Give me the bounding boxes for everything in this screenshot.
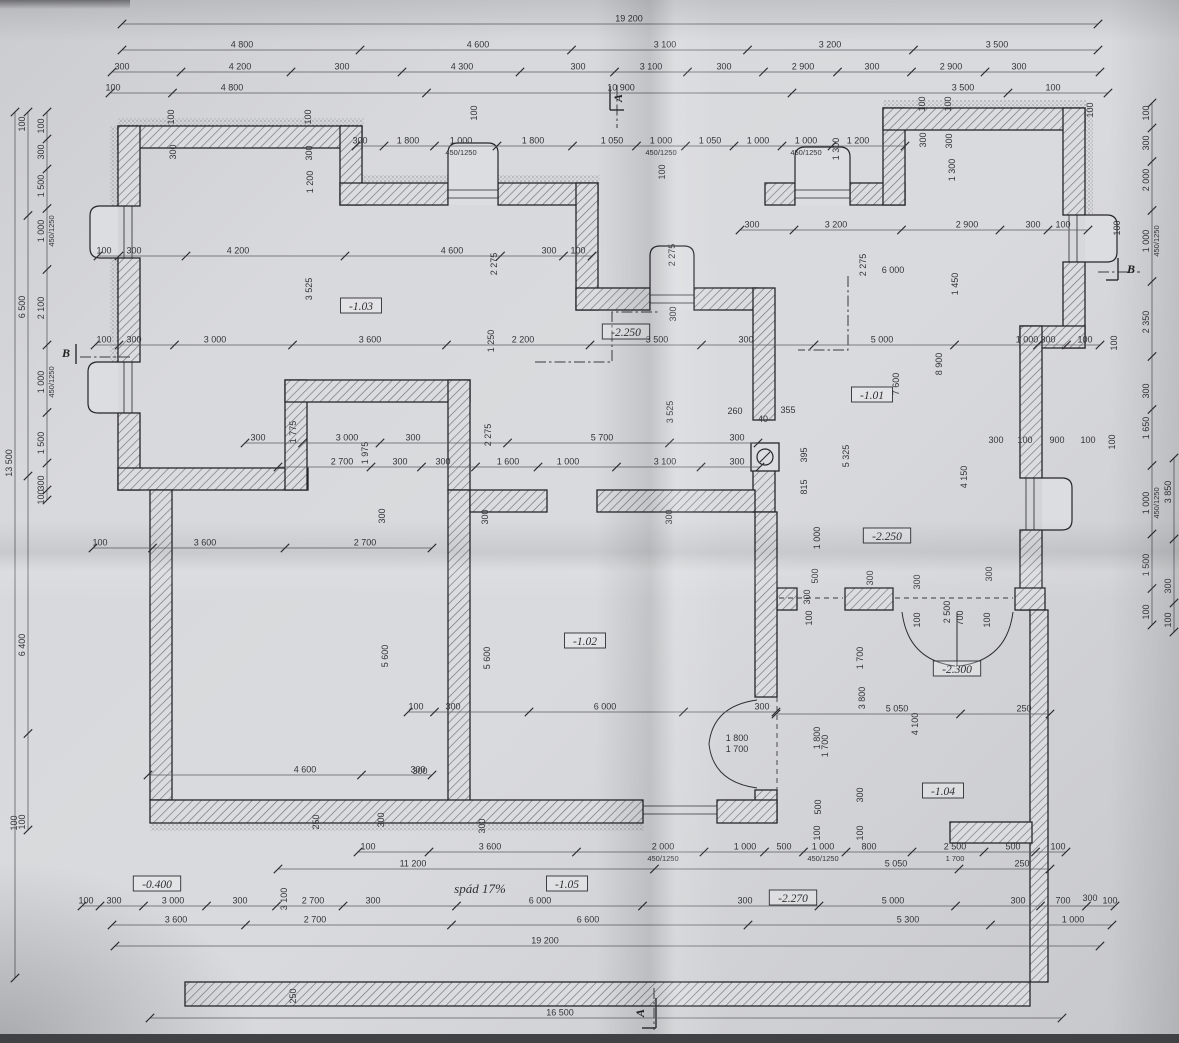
dim-label: 100	[1077, 335, 1092, 345]
dim-label: 3 800	[857, 687, 867, 710]
slope-annotation: spád 17%	[454, 881, 506, 896]
dim-label: 395	[799, 447, 809, 462]
dim-label: 2 700	[331, 457, 354, 467]
dim-label: 1 800	[726, 733, 749, 743]
dim-label: 100	[92, 538, 107, 548]
dim-label: 3 200	[819, 40, 842, 50]
dim-label: 2 000	[652, 842, 675, 852]
dim-label: 1 050	[601, 136, 624, 146]
room-level-label: -2.270	[778, 893, 808, 905]
dim-label: 300	[984, 566, 994, 581]
dim-label: 1 000	[1016, 335, 1039, 345]
dim-label: 2 275	[667, 244, 677, 267]
dim-label: 4 600	[441, 246, 464, 256]
dim-label: 300	[377, 508, 387, 523]
dim-label: 300	[865, 570, 875, 585]
dim-label: 300	[1025, 220, 1040, 230]
dim-label: 3 000	[336, 433, 359, 443]
room-level-label: -2.250	[611, 327, 641, 339]
room-level-label: -2.250	[872, 531, 902, 543]
dim-label: 700	[1055, 896, 1070, 906]
dim-label: 5 050	[886, 704, 909, 714]
dim-label: 3 600	[479, 842, 502, 852]
dim-label: 300	[1010, 896, 1025, 906]
dim-label: 450/1250	[47, 215, 56, 246]
dim-label: 300	[716, 62, 731, 72]
dim-label: 1 800	[522, 136, 545, 146]
dim-label: 1 250	[486, 330, 496, 353]
dim-label: 3 600	[165, 915, 188, 925]
dim-label: 100	[360, 842, 375, 852]
dim-label: 2 350	[1141, 311, 1151, 334]
dim-label: 300	[250, 433, 265, 443]
room-level-label: -1.05	[555, 879, 579, 891]
dim-label: 13 500	[4, 449, 14, 477]
dim-label: 250	[311, 814, 321, 829]
dim-label: 5 700	[591, 433, 614, 443]
dim-label: 300	[114, 62, 129, 72]
dim-label: 100	[1080, 435, 1095, 445]
dim-label: 4 300	[451, 62, 474, 72]
dim-label: 3 200	[825, 220, 848, 230]
dim-label: 300	[232, 896, 247, 906]
dim-label: 1 500	[36, 175, 46, 198]
dim-label: 100	[36, 118, 46, 133]
dim-label: 300	[541, 246, 556, 256]
dim-label: 100	[96, 335, 111, 345]
dim-label: 100	[855, 825, 865, 840]
dim-label: 11 200	[400, 859, 427, 869]
dim-label: 1 800	[397, 136, 420, 146]
dim-label: 6 000	[594, 702, 617, 712]
dim-label: 1 000	[812, 527, 822, 550]
dim-label: 300	[365, 896, 380, 906]
dim-label: 6 600	[577, 915, 600, 925]
dim-label: 300	[737, 896, 752, 906]
dim-label: 3 525	[665, 401, 675, 424]
dim-label: 5 000	[871, 335, 894, 345]
dim-label: 100	[1102, 896, 1117, 906]
dim-label: 300	[729, 457, 744, 467]
dim-label: 300	[570, 62, 585, 72]
dim-label: 6 400	[17, 634, 27, 657]
dim-label: 1 700	[946, 854, 965, 863]
dim-label: 3 600	[194, 538, 217, 548]
dim-label: 2 700	[304, 915, 327, 925]
dim-label: 1 000	[450, 136, 473, 146]
dim-label: 100	[166, 109, 176, 124]
dim-label: 2 900	[792, 62, 815, 72]
dim-label: 2 200	[512, 335, 535, 345]
dim-label: 1 700	[726, 744, 749, 754]
room-level-label: -2.300	[942, 664, 972, 676]
dim-label: 300	[477, 818, 487, 833]
room-level-label: -1.04	[931, 786, 955, 798]
dim-label: 700	[955, 610, 965, 625]
dim-label: 300	[405, 433, 420, 443]
dim-label: 100	[657, 164, 667, 179]
dim-label: 300	[668, 306, 678, 321]
dim-label: 100	[1055, 220, 1070, 230]
dim-label: 19 200	[531, 936, 559, 946]
dim-label: 100	[78, 896, 93, 906]
dim-label: 1 700	[855, 647, 865, 670]
dim-label: 300	[168, 144, 178, 159]
dim-label: 800	[861, 842, 876, 852]
dim-label: 100	[943, 96, 953, 111]
walls	[118, 108, 1085, 1006]
dim-label: 300	[918, 132, 928, 147]
section-marker-letter: A	[611, 94, 625, 103]
dim-label: 2 100	[36, 297, 46, 320]
dim-label: 4 600	[467, 40, 490, 50]
dim-label: 100	[1163, 612, 1173, 627]
dim-label: 6 000	[529, 896, 552, 906]
dim-label: 300	[988, 435, 1003, 445]
dim-label: 1 000	[1141, 492, 1151, 515]
dim-label: 3 000	[204, 335, 227, 345]
dim-label: 3 100	[279, 888, 289, 911]
dim-label: 1 650	[1141, 417, 1151, 440]
dim-label: 500	[810, 568, 820, 583]
dim-label: 3 600	[359, 335, 382, 345]
dim-label: 250	[288, 988, 298, 1003]
dim-label: 300	[744, 220, 759, 230]
dim-label: 4 600	[294, 765, 317, 775]
dim-label: 450/1250	[1152, 487, 1161, 518]
dim-label: 3 500	[952, 83, 975, 93]
scanned-floor-plan-sheet: spád 17% 19 2004 8004 6003 1003 2003 500…	[0, 0, 1179, 1043]
dim-label: 1 200	[305, 171, 315, 194]
dim-label: 1 775	[288, 421, 298, 444]
dim-label: 1 000	[557, 457, 580, 467]
dim-label: 100	[105, 83, 120, 93]
dim-label: 300	[1141, 135, 1151, 150]
dim-label: 2 275	[489, 253, 499, 276]
dim-label: 100	[804, 610, 814, 625]
dim-label: 300	[36, 475, 46, 490]
dim-label: 300	[1011, 62, 1026, 72]
dim-label: 100	[570, 246, 585, 256]
dim-label: 300	[802, 589, 812, 604]
section-marker-letter: B	[61, 346, 70, 360]
dim-label: 450/1250	[790, 148, 821, 157]
dim-label: 2 900	[956, 220, 979, 230]
dim-label: 5 300	[897, 915, 920, 925]
dim-label: 300	[912, 574, 922, 589]
section-marker-letter: B	[1126, 262, 1135, 276]
dim-label: 450/1250	[1152, 225, 1161, 256]
floor-plan-drawing: spád 17% 19 2004 8004 6003 1003 2003 500…	[0, 0, 1179, 1043]
dim-label: 5 000	[882, 896, 905, 906]
dim-label: 250	[1014, 859, 1029, 869]
dim-label: 450/1250	[647, 854, 678, 863]
dim-label: 300	[944, 133, 954, 148]
dim-label: 2 700	[302, 896, 325, 906]
dim-label: 450/1250	[445, 148, 476, 157]
dim-label: 100	[1109, 335, 1119, 350]
dim-label: 500	[813, 799, 823, 814]
dim-label: 5 600	[380, 645, 390, 668]
dim-label: 100	[1141, 604, 1151, 619]
dim-label: 2 500	[944, 842, 967, 852]
dim-label: 1 000	[650, 136, 673, 146]
dim-label: 1 000	[812, 842, 835, 852]
dim-label: 5 325	[841, 445, 851, 468]
dim-label: 100	[303, 109, 313, 124]
dim-label: 300	[480, 509, 490, 524]
dim-label: 3 100	[640, 62, 663, 72]
insulation-strips	[110, 100, 1093, 831]
dimension-layer: 19 2004 8004 6003 1003 2003 5003004 2003…	[4, 14, 1178, 1023]
dim-label: 5 600	[482, 647, 492, 670]
dim-label: 16 500	[546, 1008, 574, 1018]
dim-label: 300	[304, 145, 314, 160]
dim-label: 300	[864, 62, 879, 72]
dim-label: 300	[754, 702, 769, 712]
dim-label: 300	[1141, 383, 1151, 398]
dim-label: 10 900	[607, 83, 635, 93]
dim-label: 1 000	[36, 220, 46, 243]
dim-label: 100	[1112, 220, 1122, 235]
dim-label: 1 200	[847, 136, 870, 146]
dim-label: 300	[36, 144, 46, 159]
dim-label: 40	[758, 414, 768, 424]
room-level-label: -0.400	[142, 879, 172, 891]
dim-label: 1 000	[747, 136, 770, 146]
dim-label: 100	[1050, 842, 1065, 852]
dim-label: 4 200	[229, 62, 252, 72]
dim-label: 300	[738, 335, 753, 345]
dim-label: 300	[445, 702, 460, 712]
dim-label: 100	[408, 702, 423, 712]
dim-label: 3 500	[986, 40, 1009, 50]
room-level-label: -1.03	[349, 301, 373, 313]
dim-label: 6 500	[17, 296, 27, 319]
dim-label: 1 000	[36, 371, 46, 394]
dim-label: 1 000	[795, 136, 818, 146]
dim-label: 19 200	[615, 14, 643, 24]
dim-label: 2 900	[940, 62, 963, 72]
dim-label: 100	[1141, 105, 1151, 120]
dim-label: 2 275	[483, 424, 493, 447]
dim-label: 1 500	[36, 432, 46, 455]
dim-label: 815	[799, 479, 809, 494]
dim-label: 1 700	[820, 735, 830, 758]
dim-label: 100	[9, 815, 19, 830]
section-marker-letter: A	[633, 1009, 647, 1018]
dim-label: 4 100	[910, 713, 920, 736]
dim-label: 300	[412, 766, 427, 776]
dim-label: 450/1250	[47, 366, 56, 397]
dim-label: 100	[912, 612, 922, 627]
dim-label: 100	[17, 116, 27, 131]
dim-label: 300	[855, 787, 865, 802]
dim-label: 100	[917, 96, 927, 111]
dim-label: 100	[1107, 434, 1117, 449]
dim-label: 1 000	[1141, 230, 1151, 253]
section-lines	[76, 85, 1140, 1030]
dim-label: 300	[392, 457, 407, 467]
dim-label: 300	[435, 457, 450, 467]
dim-label: 450/1250	[807, 854, 838, 863]
dim-label: 100	[469, 105, 479, 120]
dim-label: 2 275	[858, 254, 868, 277]
dim-label: 8 900	[934, 353, 944, 376]
dim-label: 100	[1085, 102, 1095, 117]
window	[1042, 478, 1072, 530]
dim-label: 3 525	[304, 278, 314, 301]
dim-label: 100	[1045, 83, 1060, 93]
dim-label: 1 600	[497, 457, 520, 467]
room-level-label: -1.01	[860, 390, 884, 402]
dim-label: 900	[1049, 435, 1064, 445]
dim-label: 300	[664, 509, 674, 524]
dim-label: 100	[982, 612, 992, 627]
dim-label: 300	[126, 246, 141, 256]
dim-label: 1 300	[947, 159, 957, 182]
dim-label: 1 000	[734, 842, 757, 852]
dim-label: 100	[96, 246, 111, 256]
dim-label: 5 050	[885, 859, 908, 869]
dim-label: 2 500	[942, 601, 952, 624]
dim-label: 300	[334, 62, 349, 72]
dim-label: 6 000	[882, 265, 905, 275]
dim-label: 1 300	[831, 138, 841, 161]
room-level-label: -1.02	[573, 636, 597, 648]
dim-label: 3 100	[654, 40, 677, 50]
dim-label: 300	[1082, 893, 1097, 903]
dim-label: 500	[776, 842, 791, 852]
dim-label: 4 200	[227, 246, 250, 256]
dim-label: 4 150	[959, 466, 969, 489]
dim-label: 100	[36, 489, 46, 504]
dim-label: 1 050	[699, 136, 722, 146]
dim-label: 1 000	[1062, 915, 1085, 925]
dim-label: 250	[1016, 704, 1031, 714]
dim-label: 300	[1040, 335, 1055, 345]
dim-label: 300	[376, 812, 386, 827]
dim-label: 2 700	[354, 538, 377, 548]
dim-label: 3 000	[162, 896, 185, 906]
dim-label: 1 500	[1141, 554, 1151, 577]
dim-label: 300	[352, 136, 367, 146]
dim-label: 355	[780, 405, 795, 415]
dim-label: 300	[106, 896, 121, 906]
dim-label: 500	[1005, 842, 1020, 852]
dim-label: 3 100	[654, 457, 677, 467]
window	[88, 362, 118, 413]
dim-label: 1 450	[950, 273, 960, 296]
dim-label: 100	[812, 825, 822, 840]
dim-label: 4 800	[231, 40, 254, 50]
dim-label: 100	[1017, 435, 1032, 445]
dim-label: 4 800	[221, 83, 244, 93]
dim-label: 300	[1163, 578, 1173, 593]
dim-label: 3 850	[1163, 481, 1173, 504]
dim-label: 450/1250	[645, 148, 676, 157]
dim-label: 300	[126, 335, 141, 345]
dim-label: 2 000	[1141, 169, 1151, 192]
dim-label: 300	[729, 433, 744, 443]
dim-label: 260	[727, 406, 742, 416]
dim-label: 1 975	[360, 442, 370, 465]
